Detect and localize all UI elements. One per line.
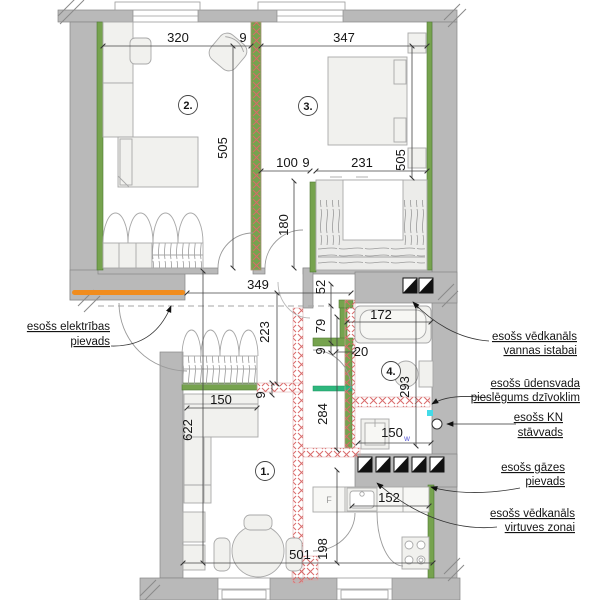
- bottom-wall-left: [140, 578, 218, 600]
- closet-hangers-room2: [152, 243, 203, 268]
- left-wall: [70, 22, 98, 300]
- bed-room3-pillow-2: [394, 118, 406, 142]
- room1-number: 1.: [260, 466, 269, 478]
- floor-plan-canvas: 320 9 347 505 505 100 9 231 180 349 52 7…: [0, 0, 600, 600]
- burner-1: [405, 541, 413, 549]
- window-sill-top-2: [258, 2, 345, 10]
- corridor-wall-a: [98, 268, 218, 274]
- dim-293: 293: [397, 376, 412, 398]
- label-vent-bath-line2: vannas istabai: [503, 345, 577, 357]
- dim-223: 223: [257, 321, 272, 343]
- left-entry-wall: [70, 270, 185, 300]
- label-water-line1: esošs ūdensvada: [490, 378, 580, 390]
- dim-347: 347: [333, 30, 355, 45]
- dim-52: 52: [313, 280, 328, 294]
- dim-505-room2: 505: [215, 137, 230, 159]
- dim-150-bath: 150: [381, 425, 403, 440]
- room1-furniture: [183, 394, 302, 577]
- leader-electric: [111, 306, 171, 346]
- room2-number: 2.: [183, 100, 192, 112]
- wardrobe-hangers-left: [318, 200, 343, 245]
- dim-501: 501: [289, 547, 311, 562]
- bottom-wall-mid: [270, 578, 337, 600]
- dim-349: 349: [247, 277, 269, 292]
- dim-622: 622: [180, 419, 195, 441]
- label-vent-kitchen-line2: virtuves zonai: [505, 522, 575, 534]
- sink-faucet: [360, 492, 364, 496]
- tv-bench-2: [183, 545, 205, 570]
- hall-closet-door-arcs: [182, 330, 258, 356]
- room4-number: 4.: [386, 366, 395, 378]
- dim-284: 284: [315, 403, 330, 425]
- bed-room2-pillow: [120, 139, 132, 185]
- dining-table: [232, 525, 284, 577]
- label-vent-kitchen-line1: esošs vēdkanāls: [490, 508, 575, 520]
- closet-door-arcs-room2: [103, 213, 203, 243]
- top-wall-mid: [198, 10, 277, 22]
- hall-closet-hangers: [182, 356, 257, 384]
- label-gas-line1: esošs gāzes: [501, 462, 565, 474]
- top-wall-right: [343, 10, 457, 22]
- window-sill-bottom-1: [222, 590, 266, 599]
- chair-left: [214, 538, 230, 571]
- dim-9a: 9: [239, 30, 246, 45]
- closet-shelves-room2: [103, 243, 152, 268]
- label-kn-line2: stāvvads: [518, 427, 564, 439]
- dim-505-room3: 505: [393, 149, 408, 171]
- water-connection-point: [427, 410, 433, 416]
- wardrobe-hangers-bottom: [318, 246, 425, 267]
- sofa-chaise: [184, 437, 211, 503]
- green-wall-room3-right: [427, 22, 432, 270]
- hall-wall-stub: [303, 268, 313, 308]
- dim-100: 100: [276, 155, 298, 170]
- demo-wall-bath-bottom: [355, 397, 430, 407]
- dim-320: 320: [167, 30, 189, 45]
- desk-unit: [103, 22, 133, 83]
- dim-198: 198: [315, 538, 330, 560]
- floor-plan-drawing: 320 9 347 505 505 100 9 231 180 349 52 7…: [0, 0, 600, 600]
- hall-closet: [182, 330, 258, 384]
- kitchen-door-arc-2: [377, 512, 403, 566]
- dim-150-sofa: 150: [210, 392, 232, 407]
- label-gas-line2: pievads: [525, 476, 565, 488]
- dim-172: 172: [370, 307, 392, 322]
- chair-top: [244, 515, 272, 530]
- nightstand-2: [408, 148, 426, 168]
- bed-room3-pillow-1: [394, 60, 406, 84]
- green-wall-room2-left: [97, 22, 103, 270]
- left-lower-wall: [160, 352, 183, 578]
- tv-bench-1: [183, 512, 205, 542]
- burner-2: [417, 541, 425, 549]
- demo-wall-closet: [257, 383, 303, 392]
- electric-supply-line: [72, 290, 185, 295]
- wardrobe-room3-inner: [343, 180, 403, 240]
- label-kn-line1: esošs KN: [514, 412, 563, 424]
- label-electric-line2: pievads: [70, 336, 110, 348]
- window-sill-bottom-2: [341, 590, 388, 599]
- dim-79: 79: [313, 319, 328, 333]
- kitchen-vent-icon: [358, 457, 444, 472]
- label-vent-bath-line1: esošs vēdkanāls: [492, 331, 577, 343]
- annotation-texts: esošs elektrības pievads esošs vēdkanāls…: [27, 321, 581, 534]
- dim-180: 180: [276, 214, 291, 236]
- shelf-unit: [103, 83, 133, 137]
- green-wall-wardrobe: [310, 182, 316, 272]
- label-water-line2: pieslēgums dzīvoklim: [471, 392, 580, 404]
- wardrobe-hangers-right: [403, 200, 426, 245]
- dim-150-bath-sub: w: [403, 434, 410, 443]
- label-electric-line1: esošs elektrības: [27, 321, 110, 333]
- top-wall-left: [58, 10, 133, 22]
- dim-231: 231: [351, 155, 373, 170]
- desk-chair: [130, 38, 151, 64]
- dim-9c: 9: [313, 347, 328, 354]
- room3-furniture: [316, 33, 427, 270]
- room2-door-arc: [218, 233, 253, 268]
- bottom-wall-right: [392, 578, 460, 600]
- dim-9d: 9: [253, 391, 268, 398]
- kn-riser-icon: [432, 419, 442, 429]
- toilet-cistern: [419, 361, 433, 387]
- dim-20: 20: [354, 344, 368, 359]
- nightstand-1: [408, 33, 426, 53]
- window-sill-top-1: [115, 2, 200, 10]
- room3-number: 3.: [303, 101, 312, 113]
- fridge-label: F: [326, 495, 332, 505]
- dim-9b: 9: [302, 155, 309, 170]
- demo-wall-kitchen-top: [303, 448, 360, 457]
